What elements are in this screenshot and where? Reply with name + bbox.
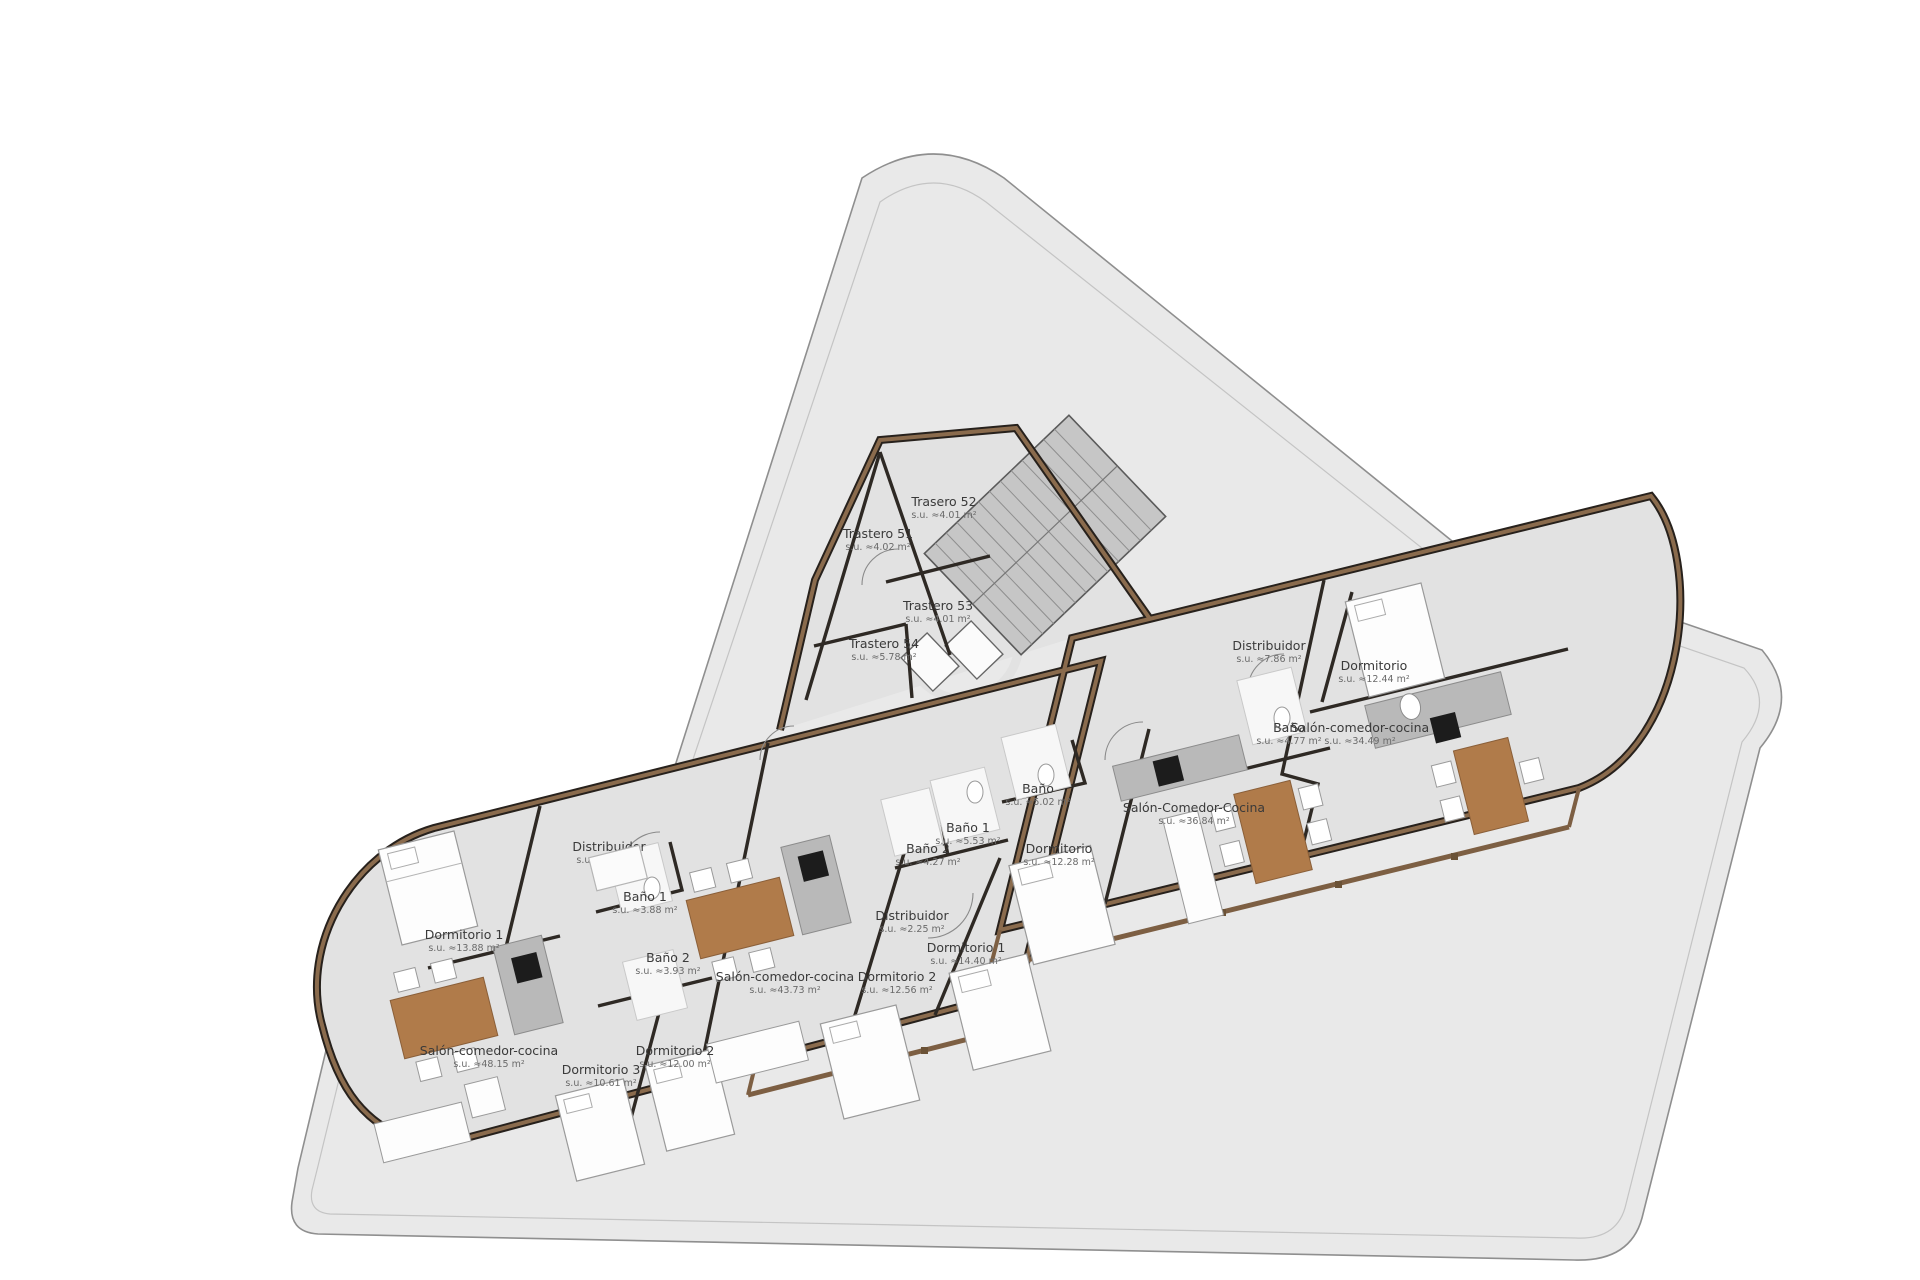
room-area: s.u. ≈36.84 m² — [1158, 816, 1229, 827]
room-label: Dormitorio 1 s.u. ≈13.88 m² — [425, 927, 504, 954]
room-label: Trasero 52 s.u. ≈4.01 m² — [910, 494, 976, 521]
room-name: Trasero 52 — [910, 494, 976, 509]
room-area: s.u. ≈4.02 m² — [845, 542, 910, 553]
room-area: s.u. ≈7.86 m² — [1236, 654, 1301, 665]
room-label: Trastero 53 s.u. ≈4.01 m² — [902, 598, 973, 625]
room-label: Dormitorio 2 s.u. ≈12.56 m² — [858, 969, 937, 996]
room-area: s.u. ≈12.44 m² — [1338, 674, 1409, 685]
room-label: Distribuidor s.u. ≈7.86 m² — [1232, 638, 1306, 665]
room-name: Trastero 51 — [842, 526, 913, 541]
room-name: Salón-comedor-cocina — [420, 1043, 558, 1058]
room-label: Dormitorio 1 s.u. ≈14.40 m² — [927, 940, 1006, 967]
room-name: Baño 1 — [623, 889, 667, 904]
room-label: Distribuidor s.u. ≈2.25 m² — [875, 908, 949, 935]
toilet — [967, 781, 983, 803]
room-area: s.u. ≈4.01 m² — [905, 614, 970, 625]
room-name: Dormitorio 1 — [927, 940, 1006, 955]
room-area: s.u. ≈34.49 m² — [1324, 736, 1395, 747]
room-area: s.u. ≈5.78 m² — [851, 652, 916, 663]
room-area: s.u. ≈2.25 m² — [879, 924, 944, 935]
room-name: Dormitorio 1 — [425, 927, 504, 942]
room-name: Baño 2 — [646, 950, 690, 965]
room-label: Dormitorio s.u. ≈12.44 m² — [1338, 658, 1409, 685]
room-area: s.u. ≈13.88 m² — [428, 943, 499, 954]
room-name: Dormitorio — [1026, 841, 1093, 856]
room-area: s.u. ≈14.40 m² — [930, 956, 1001, 967]
room-label: Dormitorio 3 s.u. ≈10.61 m² — [562, 1062, 641, 1089]
room-name: Dormitorio 3 — [562, 1062, 641, 1077]
room-name: Baño 1 — [946, 820, 990, 835]
room-name: Baño 2 — [906, 841, 950, 856]
room-label: Dormitorio 2 s.u. ≈12.00 m² — [636, 1043, 715, 1070]
room-label: Trastero 51 s.u. ≈4.02 m² — [842, 526, 913, 553]
room-name: Dormitorio 2 — [858, 969, 937, 984]
room-area: s.u. ≈4.01 m² — [911, 510, 976, 521]
room-name: Salón-comedor-cocina — [716, 969, 854, 984]
room-name: Distribuidor — [875, 908, 949, 923]
room-area: s.u. ≈12.00 m² — [639, 1059, 710, 1070]
room-label: Dormitorio s.u. ≈12.28 m² — [1023, 841, 1094, 868]
room-area: s.u. ≈3.88 m² — [612, 905, 677, 916]
room-area: s.u. ≈43.73 m² — [749, 985, 820, 996]
room-area: s.u. ≈10.61 m² — [565, 1078, 636, 1089]
room-area: s.u. ≈5.02 m² — [1005, 797, 1070, 808]
room-area: s.u. ≈4.77 m² — [1256, 736, 1321, 747]
room-name: Dormitorio 2 — [636, 1043, 715, 1058]
room-area: s.u. ≈3.93 m² — [635, 966, 700, 977]
room-name: Trastero 53 — [902, 598, 973, 613]
floor-plan-page: Trastero 51 s.u. ≈4.02 m² Trasero 52 s.u… — [0, 0, 1920, 1280]
room-area: s.u. ≈48.15 m² — [453, 1059, 524, 1070]
room-name: Distribuidor — [1232, 638, 1306, 653]
room-name: Salón-comedor-cocina — [1291, 720, 1429, 735]
room-name: Trastero 54 — [848, 636, 919, 651]
room-name: Dormitorio — [1341, 658, 1408, 673]
room-name: Baño — [1022, 781, 1054, 796]
floor-plan-drawing: Trastero 51 s.u. ≈4.02 m² Trasero 52 s.u… — [0, 0, 1920, 1280]
room-label: Trastero 54 s.u. ≈5.78 m² — [848, 636, 919, 663]
room-area: s.u. ≈12.28 m² — [1023, 857, 1094, 868]
room-name: Salón-Comedor-Cocina — [1123, 800, 1265, 815]
room-area: s.u. ≈4.27 m² — [895, 857, 960, 868]
room-area: s.u. ≈12.56 m² — [861, 985, 932, 996]
